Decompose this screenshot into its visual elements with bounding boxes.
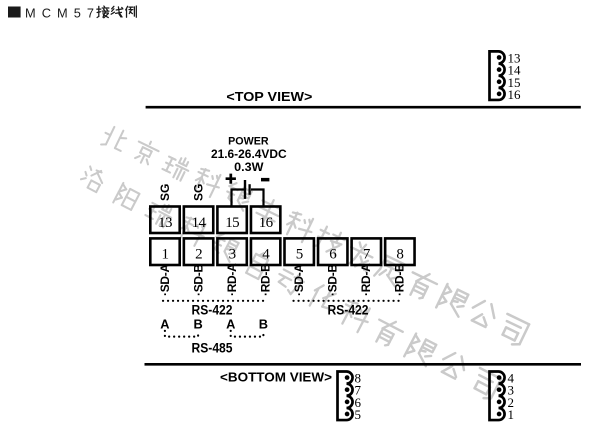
svg-text:2: 2 [195,247,202,263]
svg-text:<TOP VIEW>: <TOP VIEW> [226,89,312,104]
svg-text:·SD-B: ·SD-B [326,264,340,296]
svg-text:13: 13 [158,215,172,231]
svg-text:15: 15 [225,215,239,231]
svg-text:·SD-B: ·SD-B [191,264,205,296]
svg-text:0.3W: 0.3W [234,160,264,174]
svg-text:·SD-A: ·SD-A [158,264,172,296]
svg-text:B: B [259,316,268,331]
svg-text:SG: SG [191,184,205,201]
svg-text:1: 1 [508,407,515,422]
svg-text:8: 8 [396,247,403,263]
svg-text:5: 5 [296,247,303,263]
svg-text:B: B [193,316,202,331]
svg-text:16: 16 [508,87,522,102]
svg-text:RS-422: RS-422 [192,303,233,318]
svg-text:16: 16 [259,215,274,231]
svg-text:<BOTTOM VIEW>: <BOTTOM VIEW> [220,369,332,384]
svg-text:RS-485: RS-485 [192,341,233,356]
svg-text:14: 14 [192,215,207,231]
svg-text:3: 3 [229,247,236,263]
svg-text:·RD-B: ·RD-B [258,263,272,296]
svg-text:MCM57: MCM57 [25,5,94,20]
svg-text:POWER: POWER [228,135,269,147]
svg-text:5: 5 [355,407,362,422]
svg-text:SG: SG [158,184,172,201]
svg-text:21.6-26.4VDC: 21.6-26.4VDC [211,147,287,161]
svg-text:6: 6 [329,247,337,263]
svg-text:·RD-A: ·RD-A [225,263,239,296]
svg-text:RS-422: RS-422 [328,303,369,318]
svg-text:1: 1 [162,247,169,263]
svg-text:A: A [160,316,169,331]
svg-text:A: A [226,316,235,331]
svg-text:·SD-A: ·SD-A [292,264,306,296]
svg-text:·RD-A: ·RD-A [359,263,373,296]
svg-text:7: 7 [363,247,371,263]
svg-text:4: 4 [262,247,270,263]
svg-text:·RD-B: ·RD-B [393,263,407,296]
